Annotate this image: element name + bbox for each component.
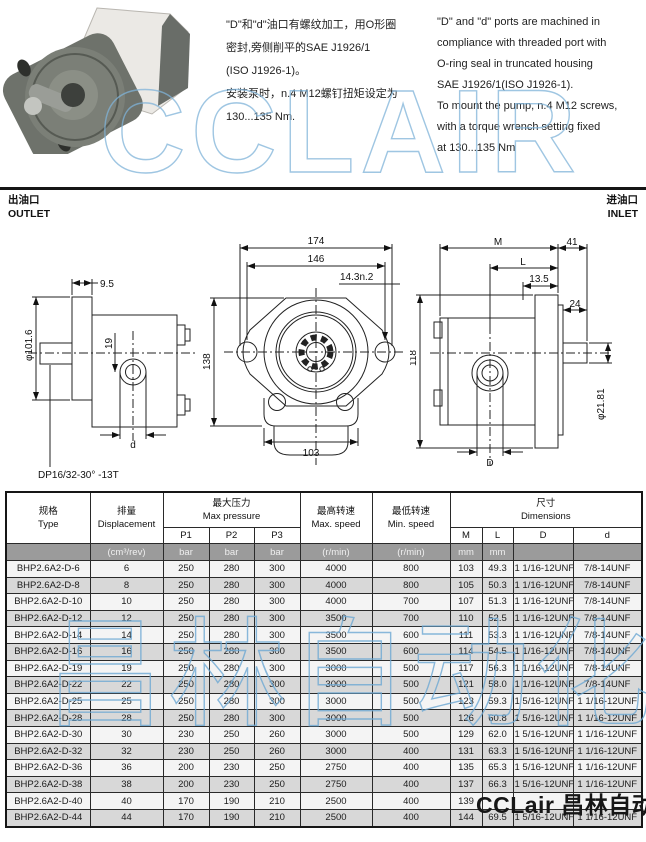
dim-13-5: 13.5 — [529, 274, 549, 285]
cell-l: 52.5 — [482, 610, 513, 627]
unit-d-small — [573, 544, 642, 561]
cell-p2: 280 — [209, 594, 254, 611]
cell-min-speed: 500 — [372, 677, 450, 694]
cell-m: 105 — [450, 577, 482, 594]
cell-p1: 250 — [163, 710, 209, 727]
dim-D: D — [486, 458, 493, 469]
cell-d-big: 1 5/16-12UNF — [513, 760, 573, 777]
cell-min-speed: 500 — [372, 710, 450, 727]
cell-m: 117 — [450, 660, 482, 677]
cell-m: 135 — [450, 760, 482, 777]
cell-p2: 280 — [209, 677, 254, 694]
cell-max-speed: 2500 — [300, 809, 372, 826]
drawing-side-right: M 41 L 13.5 24 φ21.81 118 D — [410, 230, 646, 487]
pump-photo — [2, 2, 230, 159]
cell-l: 60.8 — [482, 710, 513, 727]
cell-p1: 250 — [163, 577, 209, 594]
cell-d-small: 1 1/16-12UNF — [573, 760, 642, 777]
note-en-line: SAE J1926/1(ISO J1926-1). — [437, 75, 643, 96]
cell-min-speed: 400 — [372, 743, 450, 760]
cell-p3: 300 — [254, 561, 300, 578]
cell-p1: 230 — [163, 743, 209, 760]
cell-l: 59.3 — [482, 693, 513, 710]
inlet-label-cn: 进油口 — [607, 193, 639, 207]
table-row: BHP2.6A2-D-30 30 230 250 260 3000 500 12… — [6, 726, 642, 743]
cell-d-small: 1 1/16-12UNF — [573, 693, 642, 710]
cell-p1: 250 — [163, 677, 209, 694]
cell-displacement: 8 — [90, 577, 163, 594]
dim-138: 138 — [202, 353, 213, 370]
dim-41: 41 — [566, 237, 578, 248]
cell-displacement: 6 — [90, 561, 163, 578]
cell-displacement: 12 — [90, 610, 163, 627]
note-cn-line: 密封,旁侧削平的SAE J1926/1 — [226, 37, 438, 60]
dim-shaft-dia: φ21.81 — [596, 388, 607, 420]
cell-l: 53.3 — [482, 627, 513, 644]
col-header-type: 规格 Type — [6, 492, 90, 544]
cell-p3: 300 — [254, 677, 300, 694]
cell-type: BHP2.6A2-D-10 — [6, 594, 90, 611]
cell-d-small: 7/8-14UNF — [573, 660, 642, 677]
cell-d-big: 1 1/16-12UNF — [513, 594, 573, 611]
cell-type: BHP2.6A2-D-30 — [6, 726, 90, 743]
cell-l: 49.3 — [482, 561, 513, 578]
cell-d-small: 7/8-14UNF — [573, 677, 642, 694]
unit-p1: bar — [163, 544, 209, 561]
dim-19: 19 — [104, 337, 115, 349]
outlet-label-en: OUTLET — [8, 207, 50, 221]
cell-displacement: 32 — [90, 743, 163, 760]
unit-m: mm — [450, 544, 482, 561]
cell-d-big: 1 5/16-12UNF — [513, 726, 573, 743]
cell-max-speed: 3000 — [300, 693, 372, 710]
table-row: BHP2.6A2-D-32 32 230 250 260 3000 400 13… — [6, 743, 642, 760]
dim-146: 146 — [308, 254, 325, 265]
unit-p2: bar — [209, 544, 254, 561]
dim-24: 24 — [569, 299, 581, 310]
cell-p2: 250 — [209, 726, 254, 743]
cell-p1: 250 — [163, 643, 209, 660]
shaft-tip — [24, 97, 42, 115]
col-header-dims-en: Dimensions — [452, 510, 641, 523]
cell-max-speed: 3000 — [300, 743, 372, 760]
cell-min-speed: 500 — [372, 726, 450, 743]
col-header-type-en: Type — [8, 518, 89, 531]
cell-p3: 300 — [254, 710, 300, 727]
col-header-p1: P1 — [163, 528, 209, 544]
cell-p3: 250 — [254, 776, 300, 793]
cell-m: 107 — [450, 594, 482, 611]
table-row: BHP2.6A2-D-25 25 250 280 300 3000 500 12… — [6, 693, 642, 710]
cell-type: BHP2.6A2-D-12 — [6, 610, 90, 627]
cell-max-speed: 2500 — [300, 793, 372, 810]
cell-p1: 250 — [163, 627, 209, 644]
cell-p1: 250 — [163, 594, 209, 611]
cell-max-speed: 3000 — [300, 726, 372, 743]
note-cn-line: 130...135 Nm. — [226, 106, 438, 129]
cell-l: 62.0 — [482, 726, 513, 743]
cell-p1: 200 — [163, 760, 209, 777]
cell-p3: 300 — [254, 577, 300, 594]
cell-p3: 210 — [254, 793, 300, 810]
unit-p3: bar — [254, 544, 300, 561]
cell-type: BHP2.6A2-D-38 — [6, 776, 90, 793]
cell-p2: 280 — [209, 643, 254, 660]
col-header-mins-cn: 最低转速 — [374, 505, 449, 518]
unit-type — [6, 544, 90, 561]
cell-p2: 190 — [209, 793, 254, 810]
cell-p2: 280 — [209, 627, 254, 644]
cell-displacement: 28 — [90, 710, 163, 727]
cell-type: BHP2.6A2-D-44 — [6, 809, 90, 826]
cell-d-small: 7/8-14UNF — [573, 643, 642, 660]
cell-p2: 280 — [209, 693, 254, 710]
cell-l: 65.3 — [482, 760, 513, 777]
cell-max-speed: 4000 — [300, 561, 372, 578]
cell-displacement: 44 — [90, 809, 163, 826]
cell-p1: 250 — [163, 693, 209, 710]
cell-max-speed: 3500 — [300, 627, 372, 644]
cell-displacement: 25 — [90, 693, 163, 710]
dim-M: M — [494, 237, 502, 248]
cell-p1: 170 — [163, 809, 209, 826]
table-row: BHP2.6A2-D-10 10 250 280 300 4000 700 10… — [6, 594, 642, 611]
table-row: BHP2.6A2-D-12 12 250 280 300 3500 700 11… — [6, 610, 642, 627]
cell-displacement: 19 — [90, 660, 163, 677]
dim-L: L — [520, 257, 526, 268]
outlet-label-cn: 出油口 — [8, 193, 50, 207]
col-header-type-cn: 规格 — [8, 505, 89, 518]
cell-p3: 260 — [254, 743, 300, 760]
dim-holes: 14.3n.2 — [340, 272, 374, 283]
col-header-l: L — [482, 528, 513, 544]
dim-dia-101: φ101.6 — [24, 329, 35, 361]
cell-m: 131 — [450, 743, 482, 760]
unit-displacement: (cm³/rev) — [90, 544, 163, 561]
cell-d-big: 1 5/16-12UNF — [513, 710, 573, 727]
col-header-maxp-en: Max pressure — [165, 510, 299, 523]
col-header-dims-cn: 尺寸 — [452, 497, 641, 510]
cell-displacement: 30 — [90, 726, 163, 743]
col-header-p2: P2 — [209, 528, 254, 544]
cell-max-speed: 3000 — [300, 710, 372, 727]
cell-l: 54.5 — [482, 643, 513, 660]
cell-p2: 280 — [209, 577, 254, 594]
cell-d-small: 7/8-14UNF — [573, 561, 642, 578]
cell-p2: 280 — [209, 561, 254, 578]
col-header-maxs-en: Max. speed — [302, 518, 371, 531]
cell-displacement: 40 — [90, 793, 163, 810]
cell-min-speed: 600 — [372, 643, 450, 660]
cell-p1: 250 — [163, 660, 209, 677]
note-cn-line: (ISO J1926-1)。 — [226, 60, 438, 83]
cell-min-speed: 400 — [372, 793, 450, 810]
dim-d: d — [130, 440, 136, 451]
cell-d-big: 1 5/16-12UNF — [513, 743, 573, 760]
dim-174: 174 — [308, 236, 325, 247]
cell-type: BHP2.6A2-D-25 — [6, 693, 90, 710]
shaft-root — [61, 83, 85, 107]
table-row: BHP2.6A2-D-14 14 250 280 300 3500 600 11… — [6, 627, 642, 644]
cell-p2: 230 — [209, 760, 254, 777]
note-english: "D" and "d" ports are machined in compli… — [437, 12, 643, 159]
note-en-line: "D" and "d" ports are machined in — [437, 12, 643, 33]
cell-max-speed: 3000 — [300, 660, 372, 677]
cell-max-speed: 4000 — [300, 594, 372, 611]
cell-d-big: 1 1/16-12UNF — [513, 660, 573, 677]
note-en-line: To mount the pump, n.4 M12 screws, — [437, 96, 643, 117]
cell-m: 110 — [450, 610, 482, 627]
cell-type: BHP2.6A2-D-6 — [6, 561, 90, 578]
col-header-max-speed: 最高转速 Max. speed — [300, 492, 372, 544]
cell-d-small: 1 1/16-12UNF — [573, 710, 642, 727]
pump-photo-svg — [2, 2, 230, 154]
cell-l: 51.3 — [482, 594, 513, 611]
spline-note: DP16/32-30° -13T — [38, 470, 119, 481]
cell-p2: 280 — [209, 710, 254, 727]
inlet-label: 进油口 INLET — [607, 193, 639, 221]
cell-type: BHP2.6A2-D-40 — [6, 793, 90, 810]
cell-p2: 250 — [209, 743, 254, 760]
cell-d-big: 1 5/16-12UNF — [513, 693, 573, 710]
unit-d-big — [513, 544, 573, 561]
cell-displacement: 14 — [90, 627, 163, 644]
cell-displacement: 10 — [90, 594, 163, 611]
cell-d-big: 1 1/16-12UNF — [513, 561, 573, 578]
table-row: BHP2.6A2-D-22 22 250 280 300 3000 500 12… — [6, 677, 642, 694]
table-row: BHP2.6A2-D-8 8 250 280 300 4000 800 105 … — [6, 577, 642, 594]
col-header-max-pressure: 最大压力 Max pressure — [163, 492, 300, 528]
cell-max-speed: 2750 — [300, 776, 372, 793]
cell-type: BHP2.6A2-D-8 — [6, 577, 90, 594]
cell-max-speed: 2750 — [300, 760, 372, 777]
cell-min-speed: 800 — [372, 561, 450, 578]
cell-d-small: 1 1/16-12UNF — [573, 743, 642, 760]
cell-p3: 260 — [254, 726, 300, 743]
col-header-mins-en: Min. speed — [374, 518, 449, 531]
unit-min-speed: (r/min) — [372, 544, 450, 561]
cell-displacement: 16 — [90, 643, 163, 660]
note-cn-line: "D"和"d"油口有螺纹加工，用O形圈 — [226, 14, 438, 37]
cell-p3: 300 — [254, 610, 300, 627]
cell-l: 56.3 — [482, 660, 513, 677]
note-en-line: compliance with threaded port with — [437, 33, 643, 54]
cell-d-big: 1 1/16-12UNF — [513, 677, 573, 694]
cell-d-small: 7/8-14UNF — [573, 594, 642, 611]
cell-d-big: 1 1/16-12UNF — [513, 627, 573, 644]
table-row: BHP2.6A2-D-28 28 250 280 300 3000 500 12… — [6, 710, 642, 727]
section-divider — [0, 187, 646, 190]
cell-type: BHP2.6A2-D-32 — [6, 743, 90, 760]
cell-l: 58.0 — [482, 677, 513, 694]
col-header-dimensions: 尺寸 Dimensions — [450, 492, 642, 528]
cell-displacement: 38 — [90, 776, 163, 793]
cell-m: 111 — [450, 627, 482, 644]
table-row: BHP2.6A2-D-19 19 250 280 300 3000 500 11… — [6, 660, 642, 677]
cell-p3: 210 — [254, 809, 300, 826]
cell-m: 103 — [450, 561, 482, 578]
cell-d-big: 1 1/16-12UNF — [513, 643, 573, 660]
note-chinese: "D"和"d"油口有螺纹加工，用O形圈 密封,旁侧削平的SAE J1926/1 … — [226, 14, 438, 129]
cell-min-speed: 400 — [372, 760, 450, 777]
col-header-maxp-cn: 最大压力 — [165, 497, 299, 510]
cell-displacement: 22 — [90, 677, 163, 694]
cell-type: BHP2.6A2-D-28 — [6, 710, 90, 727]
cell-m: 126 — [450, 710, 482, 727]
cell-m: 121 — [450, 677, 482, 694]
cell-p3: 300 — [254, 660, 300, 677]
cell-p1: 170 — [163, 793, 209, 810]
cell-max-speed: 3500 — [300, 643, 372, 660]
cell-m: 114 — [450, 643, 482, 660]
pump-rear-cap — [158, 14, 190, 106]
cell-m: 123 — [450, 693, 482, 710]
cell-p1: 200 — [163, 776, 209, 793]
cell-min-speed: 800 — [372, 577, 450, 594]
note-en-line: at 130...135 Nm — [437, 138, 643, 159]
cell-min-speed: 600 — [372, 627, 450, 644]
cell-displacement: 36 — [90, 760, 163, 777]
cell-min-speed: 500 — [372, 660, 450, 677]
cell-p2: 280 — [209, 610, 254, 627]
cell-max-speed: 3000 — [300, 677, 372, 694]
cell-d-small: 7/8-14UNF — [573, 577, 642, 594]
cell-p3: 300 — [254, 693, 300, 710]
cell-p2: 190 — [209, 809, 254, 826]
cell-type: BHP2.6A2-D-36 — [6, 760, 90, 777]
note-en-line: O-ring seal in truncated housing — [437, 54, 643, 75]
cell-d-big: 1 1/16-12UNF — [513, 610, 573, 627]
note-en-line: with a torque wrench setting fixed — [437, 117, 643, 138]
unit-max-speed: (r/min) — [300, 544, 372, 561]
cell-d-small: 7/8-14UNF — [573, 610, 642, 627]
col-header-m: M — [450, 528, 482, 544]
inlet-label-en: INLET — [607, 207, 639, 221]
dim-9-5: 9.5 — [100, 279, 114, 290]
table-row: BHP2.6A2-D-36 36 200 230 250 2750 400 13… — [6, 760, 642, 777]
cell-min-speed: 500 — [372, 693, 450, 710]
dim-103: 103 — [303, 448, 320, 459]
col-header-p3: P3 — [254, 528, 300, 544]
cell-l: 50.3 — [482, 577, 513, 594]
cell-type: BHP2.6A2-D-22 — [6, 677, 90, 694]
col-header-min-speed: 最低转速 Min. speed — [372, 492, 450, 544]
dim-118: 118 — [410, 350, 419, 366]
col-header-displacement: 排量 Displacement — [90, 492, 163, 544]
cell-m: 129 — [450, 726, 482, 743]
drawing-front: 174 146 14.3n.2 138 103 — [200, 230, 426, 487]
cell-min-speed: 700 — [372, 610, 450, 627]
datasheet-page: "D"和"d"油口有螺纹加工，用O形圈 密封,旁侧削平的SAE J1926/1 … — [0, 0, 646, 842]
cell-p3: 250 — [254, 760, 300, 777]
cell-l: 63.3 — [482, 743, 513, 760]
cell-d-small: 1 1/16-12UNF — [573, 726, 642, 743]
cell-p1: 250 — [163, 561, 209, 578]
cell-d-big: 1 1/16-12UNF — [513, 577, 573, 594]
spec-table: 规格 Type 排量 Displacement 最大压力 Max pressur… — [5, 491, 643, 828]
cell-p3: 300 — [254, 643, 300, 660]
col-header-maxs-cn: 最高转速 — [302, 505, 371, 518]
cell-min-speed: 700 — [372, 594, 450, 611]
col-header-d-big: D — [513, 528, 573, 544]
col-header-d-small: d — [573, 528, 642, 544]
cell-min-speed: 400 — [372, 776, 450, 793]
outlet-label: 出油口 OUTLET — [8, 193, 50, 221]
cell-min-speed: 400 — [372, 809, 450, 826]
cell-p3: 300 — [254, 594, 300, 611]
cell-type: BHP2.6A2-D-19 — [6, 660, 90, 677]
cell-max-speed: 4000 — [300, 577, 372, 594]
cell-type: BHP2.6A2-D-14 — [6, 627, 90, 644]
cell-p3: 300 — [254, 627, 300, 644]
cell-type: BHP2.6A2-D-16 — [6, 643, 90, 660]
watermark-brand: CCLair 昌林自动化 — [476, 786, 646, 820]
col-header-disp-en: Displacement — [92, 518, 162, 531]
cell-max-speed: 3500 — [300, 610, 372, 627]
cell-p2: 280 — [209, 660, 254, 677]
cell-p1: 250 — [163, 610, 209, 627]
unit-l: mm — [482, 544, 513, 561]
table-row: BHP2.6A2-D-6 6 250 280 300 4000 800 103 … — [6, 561, 642, 578]
cell-p2: 230 — [209, 776, 254, 793]
col-header-disp-cn: 排量 — [92, 505, 162, 518]
cell-d-small: 7/8-14UNF — [573, 627, 642, 644]
cell-p1: 230 — [163, 726, 209, 743]
drawing-side-left: 9.5 φ101.6 19 d DP16/32-30° -13T — [12, 243, 210, 488]
note-cn-line: 安装泵时，n.4 M12螺钉扭矩设定为 — [226, 83, 438, 106]
table-row: BHP2.6A2-D-16 16 250 280 300 3500 600 11… — [6, 643, 642, 660]
